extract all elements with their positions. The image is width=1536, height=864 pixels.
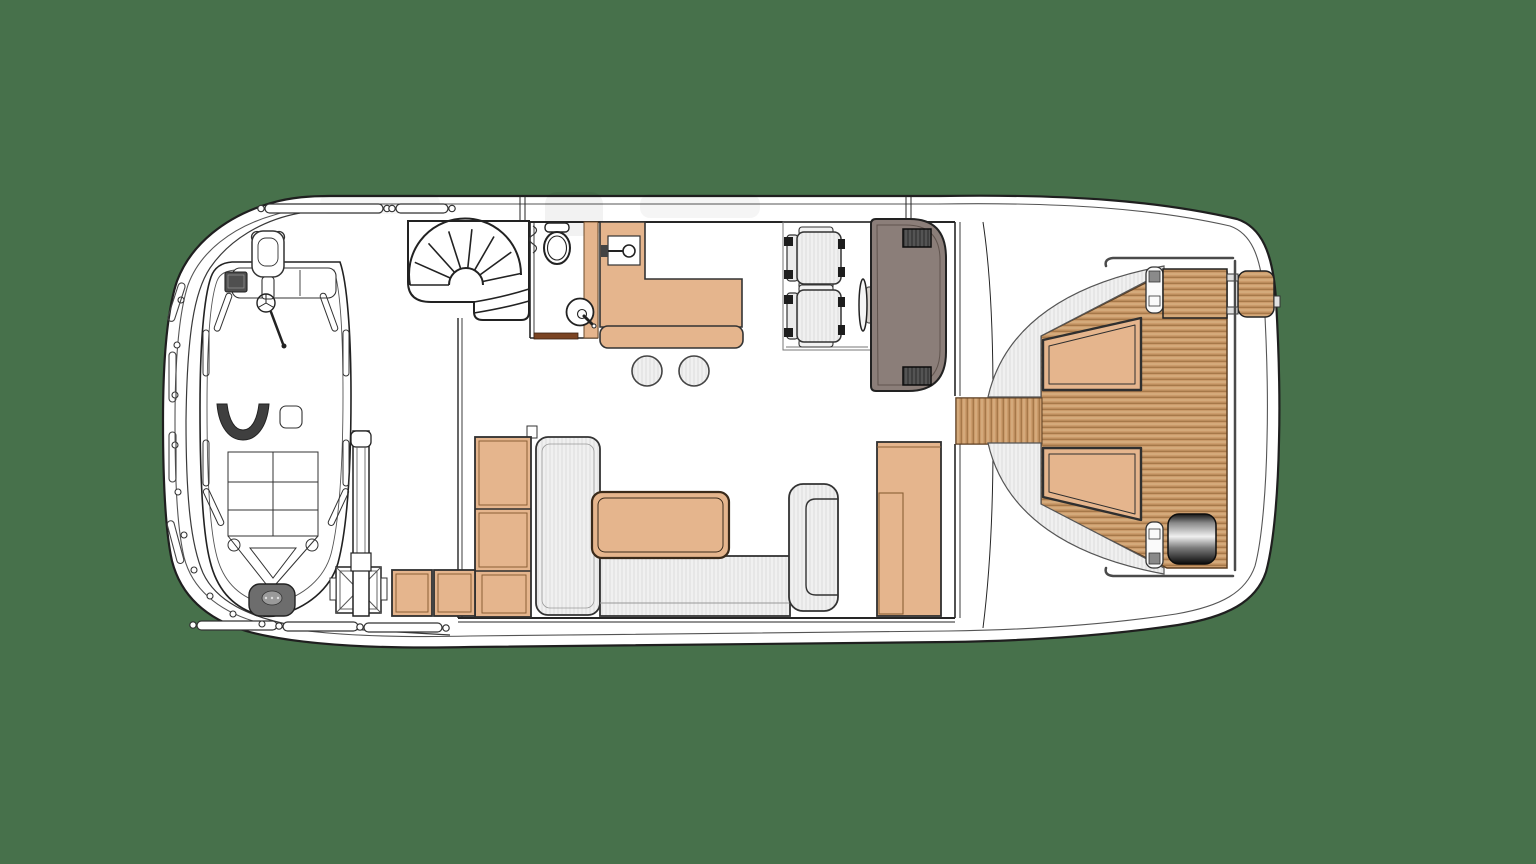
helm-seat-2 xyxy=(784,285,845,347)
helm-seat-1 xyxy=(784,227,845,289)
sofa-chaise xyxy=(536,437,600,615)
door-threshold xyxy=(534,333,578,339)
handrail-capsule xyxy=(265,204,383,213)
handrail-capsule xyxy=(396,204,448,213)
stool xyxy=(679,356,709,386)
crane-mast xyxy=(353,431,369,616)
handrail-capsules-bottom xyxy=(190,621,449,632)
stool xyxy=(632,356,662,386)
faucet-handle xyxy=(601,245,608,257)
platform-latch xyxy=(1274,296,1280,307)
platform-hinge xyxy=(1227,307,1238,314)
sofa-armrest xyxy=(789,484,838,611)
console-vent xyxy=(903,229,931,247)
toilet-icon xyxy=(544,223,570,264)
sofa-seat xyxy=(600,556,790,616)
deck-fitting-top xyxy=(1146,267,1163,313)
steering-wheel-icon xyxy=(859,279,867,331)
platform-hinge xyxy=(1227,274,1238,281)
grill-cylinder xyxy=(1168,514,1216,564)
handrail-capsules-top xyxy=(258,204,455,213)
handrail-capsule xyxy=(364,623,442,632)
sofa-table xyxy=(592,492,729,558)
tender-seat xyxy=(280,406,302,428)
faucet-icon xyxy=(623,245,635,257)
yacht-deck-plan-image xyxy=(0,0,1536,864)
teak-walkway-strip xyxy=(956,398,1042,444)
cabinet-bottom-row xyxy=(392,570,475,616)
console-vent xyxy=(903,367,931,385)
deck-plan-svg xyxy=(0,0,1536,864)
boarding-platform xyxy=(1163,269,1280,318)
tender-boat xyxy=(200,231,351,617)
handrail-capsule xyxy=(283,622,358,631)
galley-counter-lip xyxy=(600,326,743,348)
cabinet-column xyxy=(475,437,531,617)
aft-cabinet xyxy=(877,442,941,616)
tender-stern-bench xyxy=(232,268,336,298)
tender-hull xyxy=(200,262,351,617)
deck-fitting-bottom xyxy=(1146,522,1163,568)
